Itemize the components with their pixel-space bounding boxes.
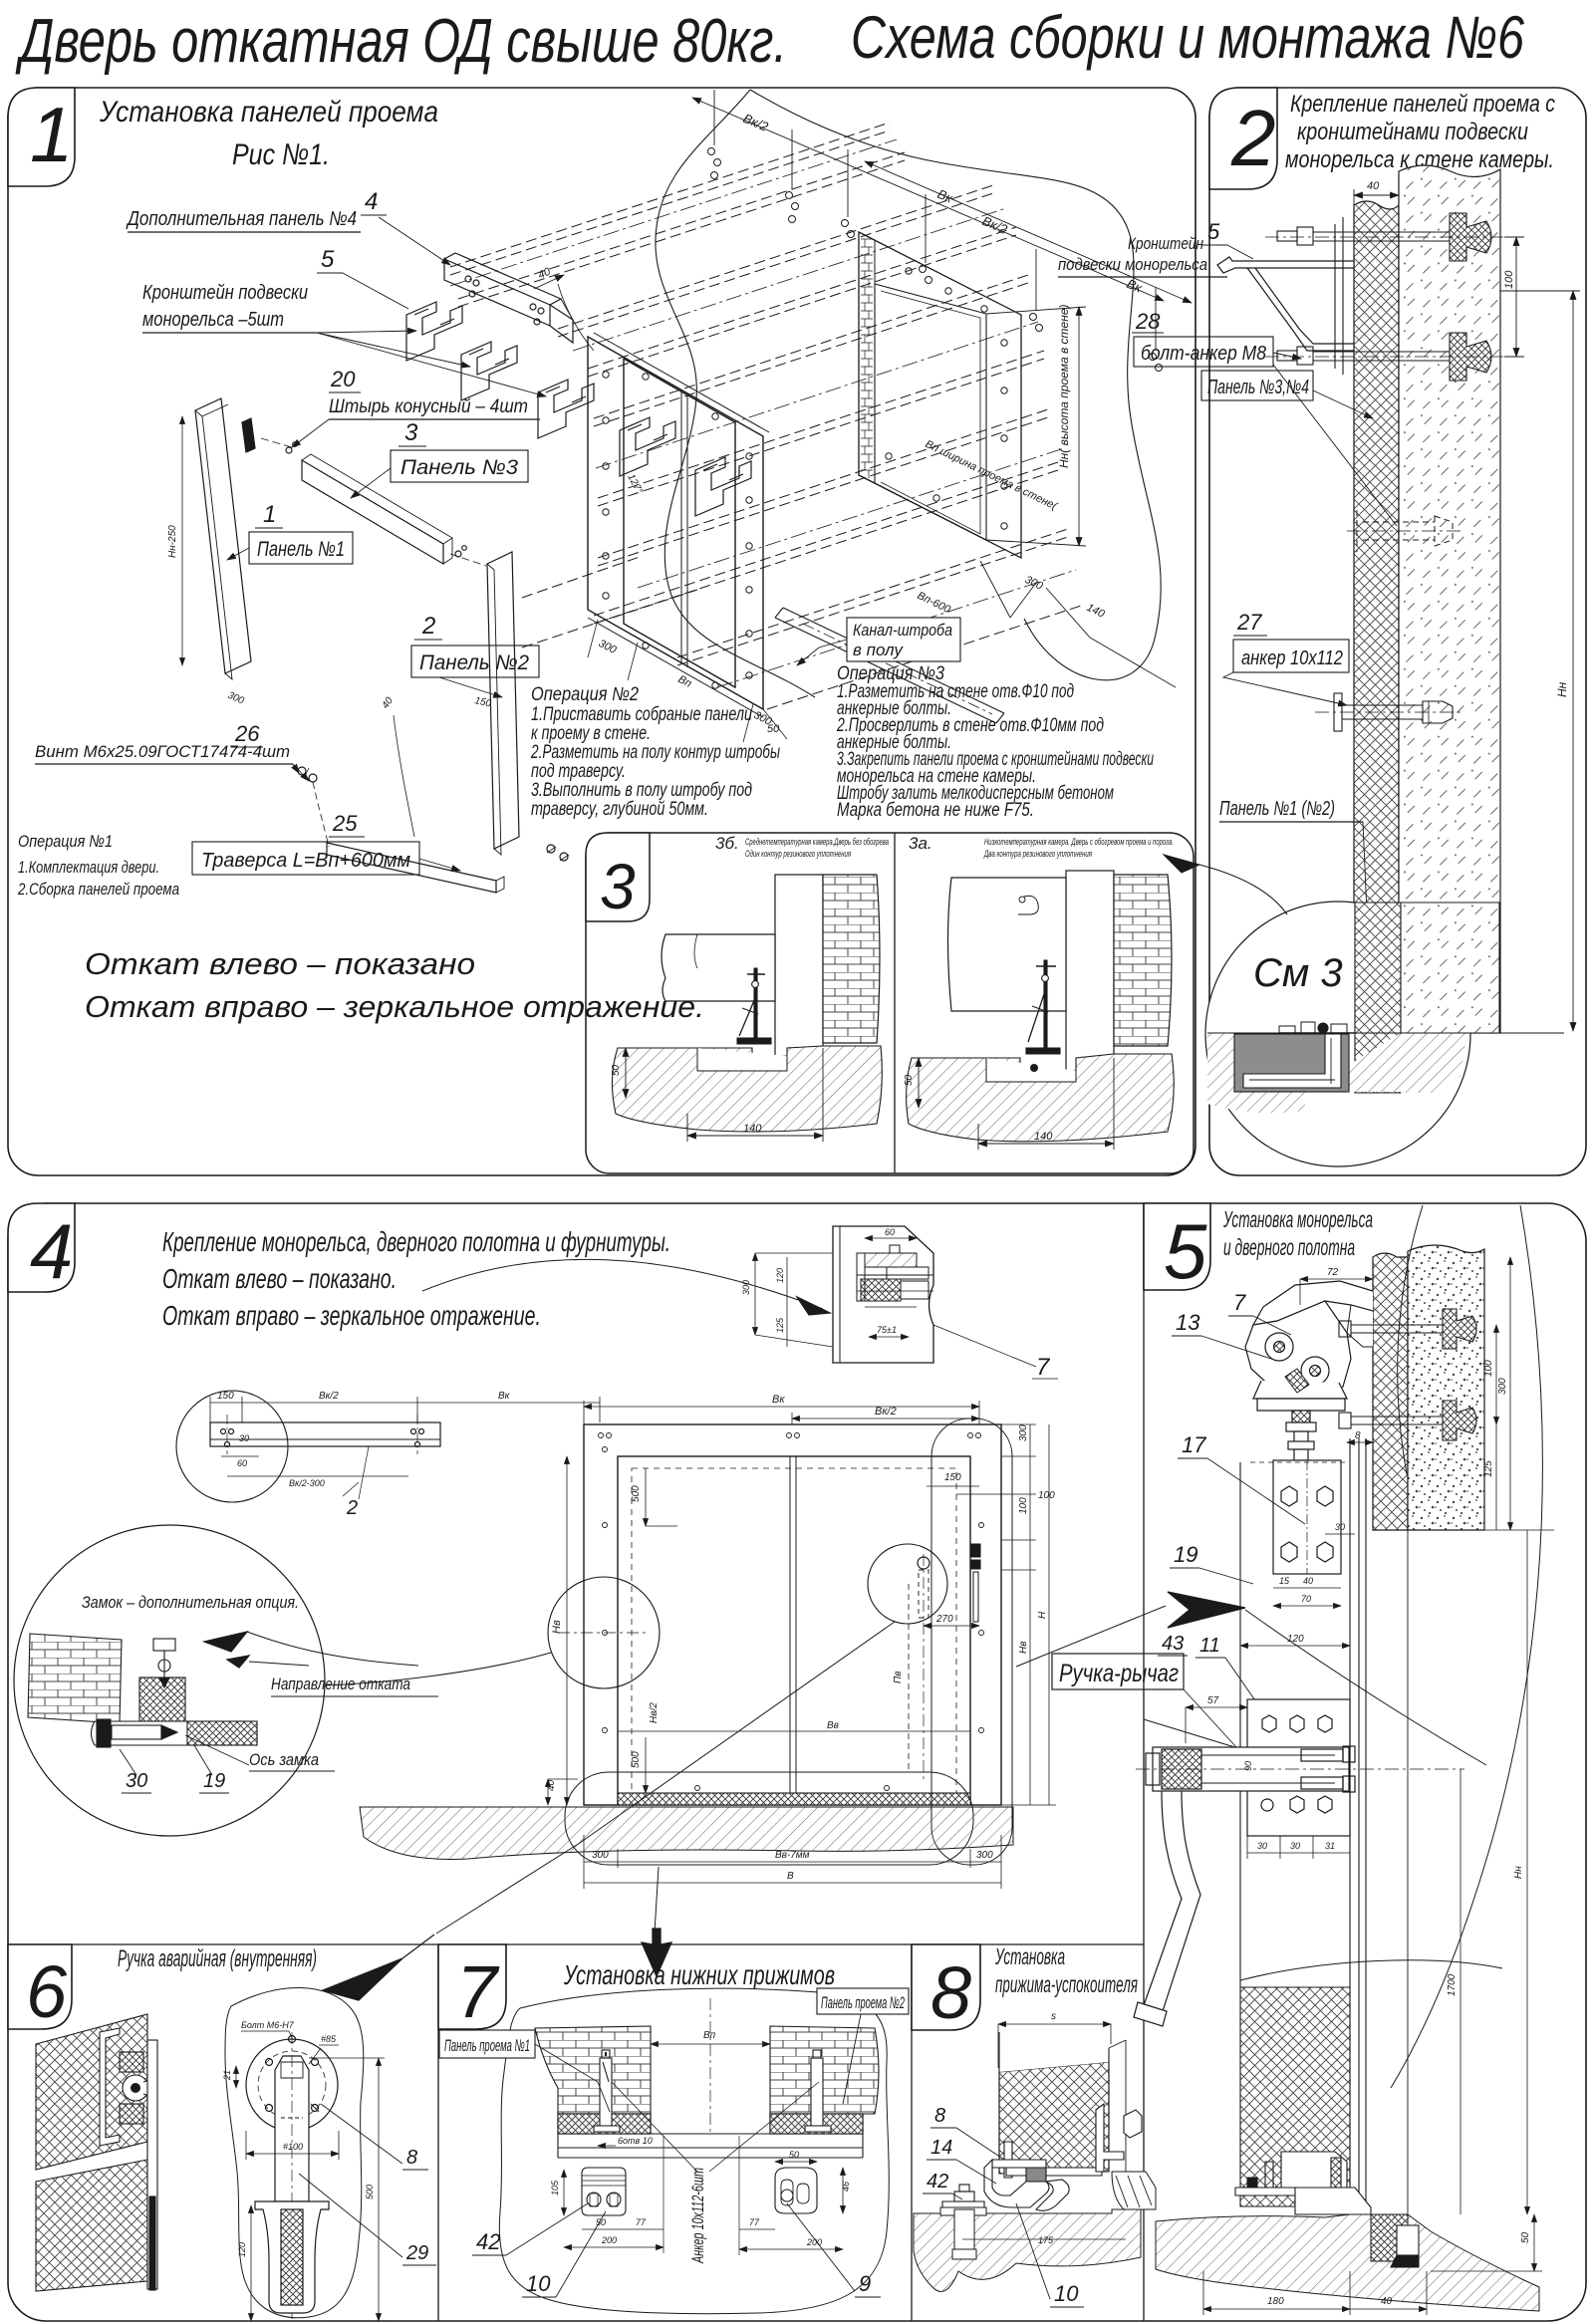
svg-text:Вк/2: Вк/2 [875,1406,897,1418]
svg-text:#100: #100 [283,2142,303,2152]
svg-text:Крепление панелей проема с: Крепление панелей проема с [1290,91,1555,118]
svg-text:500: 500 [365,2185,375,2199]
svg-text:Винт М6х25.09ГОСТ17474-4шт: Винт М6х25.09ГОСТ17474-4шт [35,742,290,761]
svg-text:300: 300 [1018,1424,1029,1441]
svg-text:60: 60 [237,1458,247,1468]
svg-text:72: 72 [1327,1267,1339,1278]
svg-text:4: 4 [365,188,378,215]
svg-text:120: 120 [1287,1634,1304,1645]
svg-text:100: 100 [1503,270,1515,289]
svg-text:200: 200 [601,2235,617,2245]
svg-text:40: 40 [1303,1576,1313,1586]
svg-text:Схема сборки и монтажа №6: Схема сборки и монтажа №6 [851,4,1524,71]
svg-text:42: 42 [927,2171,948,2193]
svg-text:120: 120 [237,2242,247,2257]
svg-text:Дверь откатная ОД свыше 80кг.: Дверь откатная ОД свыше 80кг. [15,7,787,76]
svg-text:180: 180 [1267,2296,1284,2307]
svg-text:7: 7 [1233,1290,1246,1315]
svg-text:120: 120 [775,1268,785,1283]
svg-text:Установка монорельса: Установка монорельса [1222,1206,1373,1232]
svg-text:кронштейнами подвески: кронштейнами подвески [1297,119,1528,145]
svg-text:300: 300 [741,1280,751,1295]
svg-text:2: 2 [1230,94,1276,182]
svg-text:125: 125 [1483,1460,1494,1477]
svg-text:Пв: Пв [893,1672,904,1683]
svg-text:1700: 1700 [1447,1973,1458,1996]
svg-text:В: В [787,1871,794,1882]
svg-text:60: 60 [885,1227,895,1237]
svg-text:в полу: в полу [853,641,904,659]
svg-text:подвески монорельса: подвески монорельса [1058,255,1207,274]
svg-text:270: 270 [935,1614,953,1625]
svg-text:3.Выполнить в полу штробу под: 3.Выполнить в полу штробу под [531,780,752,801]
svg-text:50: 50 [767,723,780,735]
svg-text:40: 40 [1381,2296,1393,2307]
svg-text:Ось замка: Ось замка [249,1750,319,1769]
svg-text:1: 1 [30,91,73,178]
svg-text:14: 14 [930,2137,952,2159]
svg-text:6: 6 [26,1950,68,2033]
svg-text:Панель №1 (№2): Панель №1 (№2) [1219,798,1335,820]
svg-text:29: 29 [405,2242,428,2264]
svg-text:Канал-штроба: Канал-штроба [853,621,952,640]
svg-text:Анкер 10х112-6шт: Анкер 10х112-6шт [688,2168,707,2264]
svg-text:7: 7 [1036,1354,1051,1381]
svg-text:30: 30 [239,1433,249,1443]
svg-text:27: 27 [1236,610,1262,635]
svg-text:8: 8 [930,1951,971,2034]
svg-text:140: 140 [743,1123,762,1135]
svg-text:Ручка аварийная (внутренняя): Ручка аварийная (внутренняя) [118,1945,317,1972]
svg-text:Дополнительная панель №4: Дополнительная панель №4 [126,208,357,230]
svg-text:8: 8 [1355,1430,1361,1441]
svg-text:Вп: Вп [703,2030,716,2041]
svg-text:300: 300 [592,1850,609,1861]
svg-text:3а.: 3а. [909,834,932,853]
svg-text:5: 5 [321,246,335,273]
svg-text:3: 3 [404,419,418,446]
svg-text:500: 500 [631,1485,642,1502]
svg-text:15: 15 [1279,1576,1290,1586]
svg-text:Панель №3,№4: Панель №3,№4 [1207,377,1309,398]
svg-text:28: 28 [1135,309,1161,334]
svg-text:Hв: Hв [551,1620,563,1634]
svg-text:болт-анкер М8: болт-анкер М8 [1141,343,1266,365]
svg-text:анкер 10х112: анкер 10х112 [1241,647,1343,669]
svg-text:Панель №2: Панель №2 [419,651,529,674]
svg-text:31: 31 [1325,1841,1335,1851]
svg-text:к проему в стене.: к проему в стене. [531,723,651,744]
svg-text:42: 42 [476,2229,500,2254]
svg-text:Вк: Вк [498,1391,511,1402]
svg-text:2: 2 [421,613,435,640]
svg-text:Панель проема №1: Панель проема №1 [444,2036,530,2055]
svg-text:Штырь конусный – 4шт: Штырь конусный – 4шт [329,396,528,417]
svg-text:43: 43 [1162,1633,1184,1655]
svg-text:Вв: Вв [827,1720,839,1731]
svg-text:300: 300 [1497,1378,1508,1395]
svg-text:Среднетемпературная камера.Две: Среднетемпературная камера.Дверь без обо… [745,837,889,847]
svg-text:2.Разметить на полу контур штр: 2.Разметить на полу контур штробы [530,742,780,763]
svg-text:17: 17 [1182,1432,1206,1457]
svg-text:300: 300 [976,1850,993,1861]
svg-text:См 3: См 3 [1253,951,1343,995]
svg-text:500: 500 [631,1751,642,1768]
svg-text:175: 175 [1038,2235,1054,2245]
svg-text:Вк/2-300: Вк/2-300 [289,1478,325,1488]
svg-text:5: 5 [1164,1207,1207,1295]
svg-text:и дверного полотна: и дверного полотна [1223,1234,1355,1260]
svg-text:40: 40 [1367,180,1380,192]
svg-text:Кронштейн: Кронштейн [1128,234,1204,253]
svg-text:50: 50 [611,1064,622,1076]
svg-text:Вк: Вк [772,1394,785,1406]
svg-text:Кронштейн подвески: Кронштейн подвески [142,282,308,304]
svg-text:8: 8 [406,2147,417,2169]
svg-text:57: 57 [1207,1695,1219,1706]
svg-text:75±1: 75±1 [877,1325,897,1335]
svg-text:под траверсу.: под траверсу. [531,761,626,782]
svg-text:траверсу, глубиной 50мм.: траверсу, глубиной 50мм. [531,799,708,820]
svg-text:1.Приставить собраные панели: 1.Приставить собраные панели [531,704,752,725]
svg-text:5: 5 [1207,219,1220,244]
svg-text:Вк/2: Вк/2 [319,1391,339,1402]
svg-text:150: 150 [217,1391,234,1402]
svg-text:Ручка-рычаг: Ручка-рычаг [1059,1660,1179,1687]
svg-text:Вв-7мм: Вв-7мм [775,1850,810,1861]
svg-text:9: 9 [859,2271,871,2296]
svg-text:70: 70 [1301,1594,1311,1604]
svg-text:30: 30 [1335,1522,1345,1532]
svg-text:7: 7 [456,1950,500,2033]
svg-text:Панель проема №2: Панель проема №2 [821,1993,905,2012]
svg-text:Два контура резинового уплотне: Два контура резинового уплотнения [983,849,1092,859]
svg-text:Болт М6-Н7: Болт М6-Н7 [241,2020,295,2030]
svg-text:11: 11 [1199,1635,1220,1657]
svg-text:Замок – дополнительная опция.: Замок – дополнительная опция. [82,1593,299,1612]
svg-text:Направление отката: Направление отката [271,1675,410,1693]
svg-text:прижима-успокоителя: прижима-успокоителя [995,1971,1138,1997]
svg-text:1.Комплектация двери.: 1.Комплектация двери. [18,858,159,877]
svg-text:Откат влево – показано: Откат влево – показано [85,946,475,981]
svg-text:Установка нижних прижимов: Установка нижних прижимов [563,1959,835,1990]
svg-text:Рис №1.: Рис №1. [232,138,330,171]
svg-text:s: s [1051,2011,1056,2022]
svg-text:Панель №1: Панель №1 [257,538,345,561]
svg-text:4: 4 [30,1207,73,1295]
svg-text:Панель №3: Панель №3 [400,456,518,479]
svg-text:25: 25 [332,811,358,836]
svg-text:Марка бетона не ниже F75.: Марка бетона не ниже F75. [837,800,1034,821]
svg-text:Hв: Hв [1018,1642,1029,1654]
svg-text:10: 10 [1054,2281,1079,2306]
svg-text:Один контур резинового уплотне: Один контур резинового уплотнения [745,849,851,859]
svg-text:30: 30 [126,1770,147,1792]
svg-text:Операция №1: Операция №1 [18,832,113,851]
svg-text:Hв/2: Hв/2 [649,1702,660,1723]
svg-text:Откат вправо – зеркальное отра: Откат вправо – зеркальное отражение. [162,1300,541,1331]
svg-text:100: 100 [1483,1360,1494,1377]
svg-text:Hн: Hн [1513,1866,1524,1879]
svg-text:13: 13 [1176,1310,1200,1335]
svg-text:Откат влево – показано.: Откат влево – показано. [162,1263,397,1294]
svg-text:19: 19 [203,1770,225,1792]
svg-text:90: 90 [1243,1761,1253,1771]
svg-text:105: 105 [550,2180,560,2195]
svg-text:10: 10 [526,2271,551,2296]
svg-text:Траверса L=Вп+600мм: Траверса L=Вп+600мм [201,850,410,872]
svg-text:100: 100 [1018,1497,1029,1514]
svg-text:8: 8 [934,2105,945,2127]
svg-text:Hн( высота проема в стене): Hн( высота проема в стене) [1057,304,1071,468]
svg-text:Откат вправо – зеркальное отра: Откат вправо – зеркальное отражение. [85,989,704,1024]
svg-text:77: 77 [636,2217,647,2227]
svg-text:150: 150 [944,1472,961,1483]
svg-text:монорельса –5шт: монорельса –5шт [142,309,284,331]
svg-text:20: 20 [330,367,356,391]
svg-text:100: 100 [1038,1490,1055,1501]
svg-text:19: 19 [1174,1542,1197,1567]
svg-text:Низкотемпературная камера. Две: Низкотемпературная камера. Дверь с обогр… [984,837,1174,847]
svg-text:Операция №2: Операция №2 [531,684,639,705]
svg-text:#85: #85 [321,2034,337,2044]
svg-text:Крепление монорельса, дверного: Крепление монорельса, дверного полотна и… [162,1226,670,1257]
svg-text:21: 21 [222,2070,232,2081]
svg-text:2: 2 [346,1497,358,1519]
svg-text:50: 50 [1520,2231,1531,2243]
svg-text:1: 1 [263,501,276,528]
svg-text:3: 3 [600,851,636,922]
svg-text:125: 125 [775,1317,785,1333]
svg-text:Hн: Hн [1555,681,1569,697]
svg-text:Hн-250: Hн-250 [167,525,178,558]
svg-text:50: 50 [904,1074,915,1086]
svg-text:Установка панелей проема: Установка панелей проема [99,96,438,129]
svg-text:30: 30 [1290,1841,1300,1851]
svg-text:46: 46 [841,2182,851,2192]
svg-text:50: 50 [789,2150,799,2160]
svg-text:3б.: 3б. [715,834,739,853]
svg-text:2.Сборка панелей проема: 2.Сборка панелей проема [17,880,179,899]
svg-text:140: 140 [1034,1131,1053,1143]
svg-text:30: 30 [1257,1841,1267,1851]
svg-text:H: H [1037,1611,1048,1619]
svg-text:6отв 10: 6отв 10 [618,2136,653,2146]
svg-text:77: 77 [749,2217,760,2227]
svg-text:Установка: Установка [994,1943,1065,1969]
